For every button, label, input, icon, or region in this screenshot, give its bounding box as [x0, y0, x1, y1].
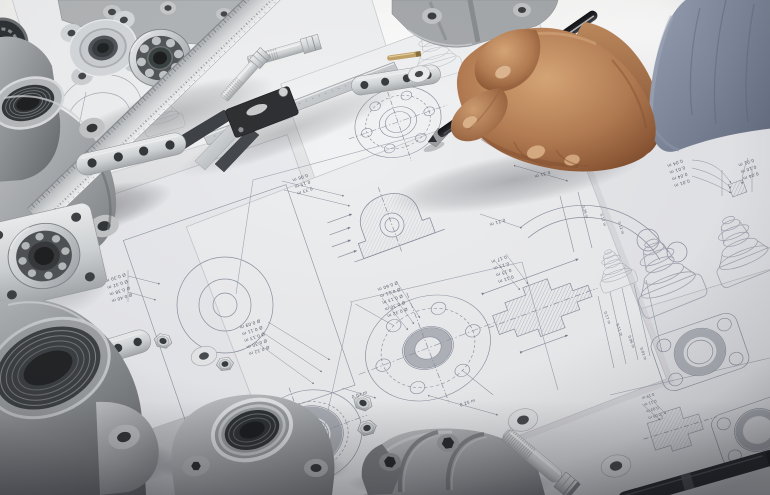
photo-engineering-workspace: Ø 0.40 m Ø 0.38 m Ø 0.32 m Ø 0.30 m 0.40…	[0, 0, 770, 495]
vignette-overlay	[0, 0, 770, 495]
